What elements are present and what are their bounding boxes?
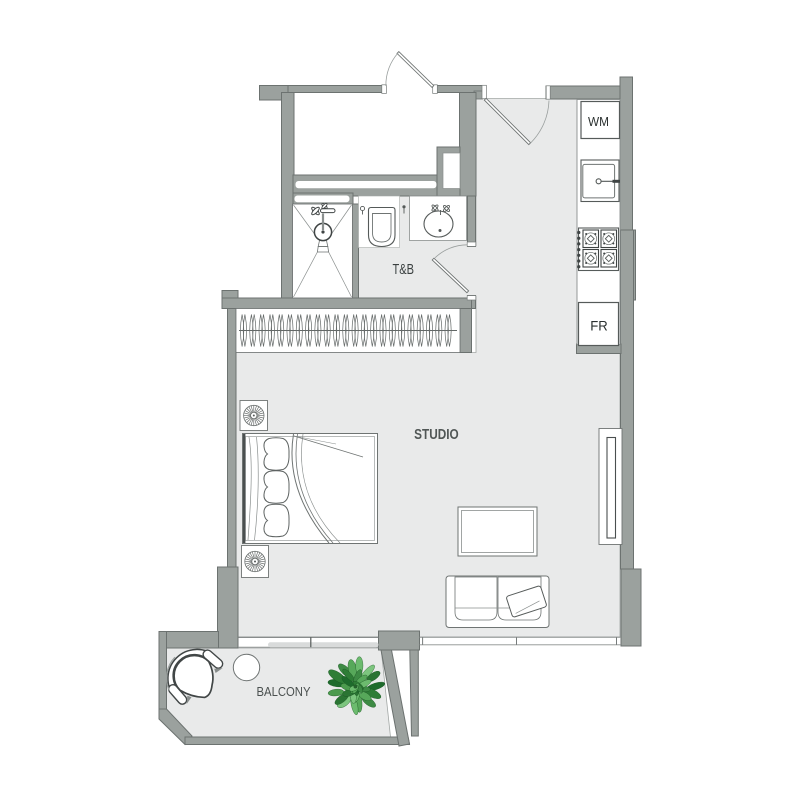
svg-text:WM: WM [588,114,609,129]
svg-text:T&B: T&B [393,262,415,278]
svg-text:FR: FR [590,319,608,334]
svg-text:STUDIO: STUDIO [414,427,459,443]
svg-text:BALCONY: BALCONY [257,684,311,699]
